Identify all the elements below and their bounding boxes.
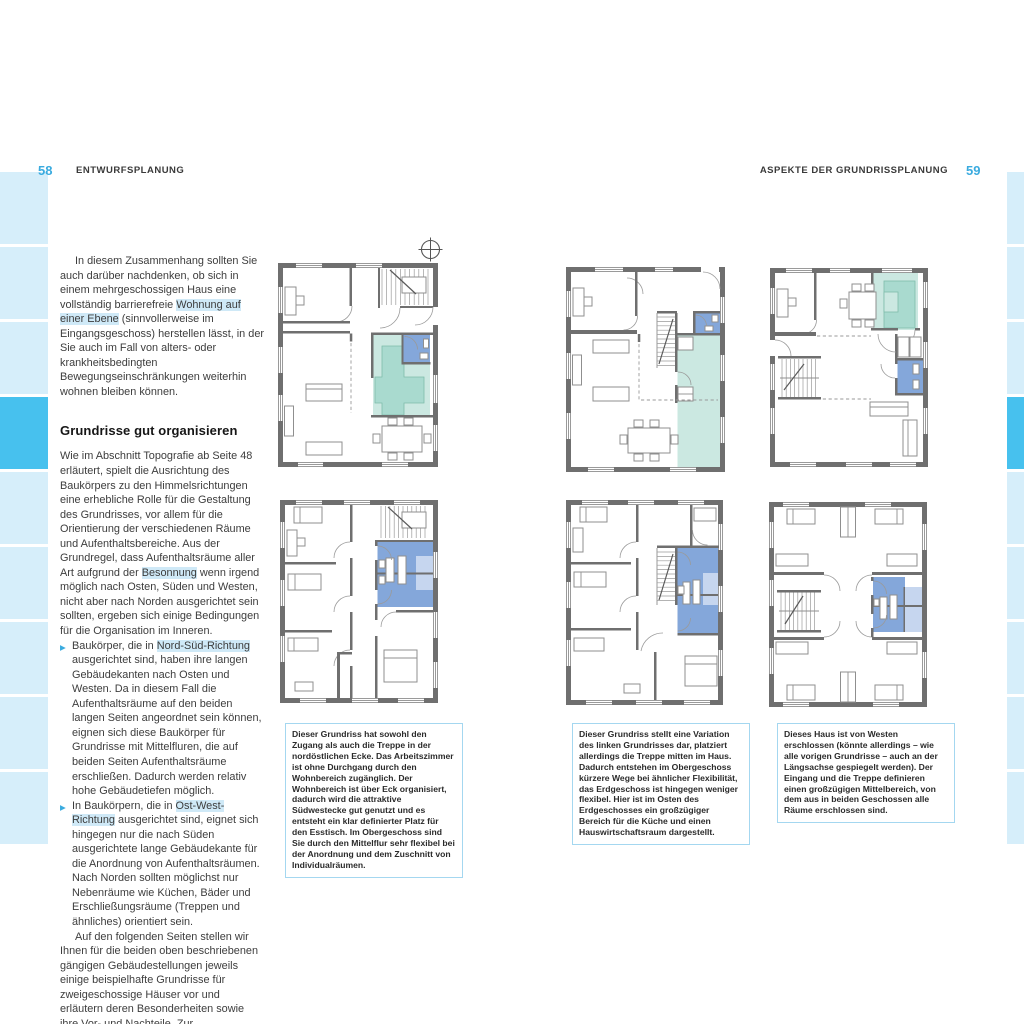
text-run: (sinnvollerweise im Eingangsgeschoss) he… <box>60 313 264 398</box>
text-run: ausgerichtet sind, eignet sich hingegen … <box>72 814 260 928</box>
text-run: Wie im Abschnitt Topografie ab Seite 48 … <box>60 450 255 578</box>
bullet-arrow-icon: ▶ <box>60 801 66 816</box>
paragraph-outlook: Auf den folgenden Seiten stellen wir Ihn… <box>60 930 264 1024</box>
right-thumb-tab-5 <box>1007 472 1024 544</box>
floor-plan-1-upper <box>280 500 438 703</box>
text-run: Baukörper, die in <box>72 640 157 652</box>
bullet-arrow-icon: ▶ <box>60 641 66 656</box>
floor-plan-3-upper <box>769 502 927 707</box>
running-head-left: ENTWURFSPLANUNG <box>76 165 184 176</box>
text-run: In Baukörpern, die in <box>72 800 176 812</box>
left-thumb-tab-8 <box>0 697 48 769</box>
paragraph-intro: In diesem Zusammenhang sollten Sie auch … <box>60 254 264 399</box>
right-edge-tabs <box>1007 0 1024 1024</box>
running-head-right: ASPEKTE DER GRUNDRISSPLANUNG <box>760 165 948 176</box>
left-thumb-tab-9 <box>0 772 48 844</box>
north-compass-icon <box>417 236 444 263</box>
caption-plan-2: Dieser Grundriss stellt eine Variation d… <box>572 723 750 845</box>
bullet-north-south: ▶Baukörper, die in Nord-Süd-Richtung aus… <box>60 639 264 799</box>
right-thumb-tab-1 <box>1007 172 1024 244</box>
right-thumb-tab-4-active <box>1007 397 1024 469</box>
bullet-east-west: ▶In Baukörpern, die in Ost-West-Richtung… <box>60 799 264 930</box>
left-thumb-tab-2 <box>0 247 48 319</box>
right-thumb-tab-7 <box>1007 622 1024 694</box>
right-thumb-tab-2 <box>1007 247 1024 319</box>
bullet-east-west-text: In Baukörpern, die in Ost-West-Richtung … <box>72 800 260 928</box>
right-thumb-tab-3 <box>1007 322 1024 394</box>
left-thumb-tab-6 <box>0 547 48 619</box>
left-thumb-tab-5 <box>0 472 48 544</box>
caption-plan-1: Dieser Grundriss hat sowohl den Zugang a… <box>285 723 463 878</box>
book-spread: 58 ENTWURFSPLANUNG ASPEKTE DER GRUNDRISS… <box>0 0 1024 1024</box>
paragraph-orientation: Wie im Abschnitt Topografie ab Seite 48 … <box>60 449 264 638</box>
text-run: ausgerichtet sind, haben ihre langen Geb… <box>72 654 262 797</box>
floor-plan-3-ground <box>770 268 928 467</box>
page-number-left: 58 <box>38 163 52 178</box>
right-thumb-tab-9 <box>1007 772 1024 844</box>
right-thumb-tab-8 <box>1007 697 1024 769</box>
highlighted-term: Nord-Süd-Richtung <box>157 640 250 652</box>
left-thumb-tab-7 <box>0 622 48 694</box>
left-thumb-tab-4-active <box>0 397 48 469</box>
page-number-right: 59 <box>966 163 980 178</box>
left-edge-tabs <box>0 0 48 1024</box>
floor-plan-2-upper <box>566 500 723 705</box>
floor-plan-1-ground <box>278 263 438 467</box>
floor-plan-2-ground <box>566 267 725 472</box>
caption-plan-3: Dieses Haus ist von Westen erschlossen (… <box>777 723 955 823</box>
left-thumb-tab-3 <box>0 322 48 394</box>
section-heading: Grundrisse gut organisieren <box>60 423 264 439</box>
highlighted-term: Besonnung <box>142 567 197 579</box>
left-thumb-tab-1 <box>0 172 48 244</box>
bullet-north-south-text: Baukörper, die in Nord-Süd-Richtung ausg… <box>72 640 262 797</box>
body-text-column: In diesem Zusammenhang sollten Sie auch … <box>60 254 264 1024</box>
right-thumb-tab-6 <box>1007 547 1024 619</box>
